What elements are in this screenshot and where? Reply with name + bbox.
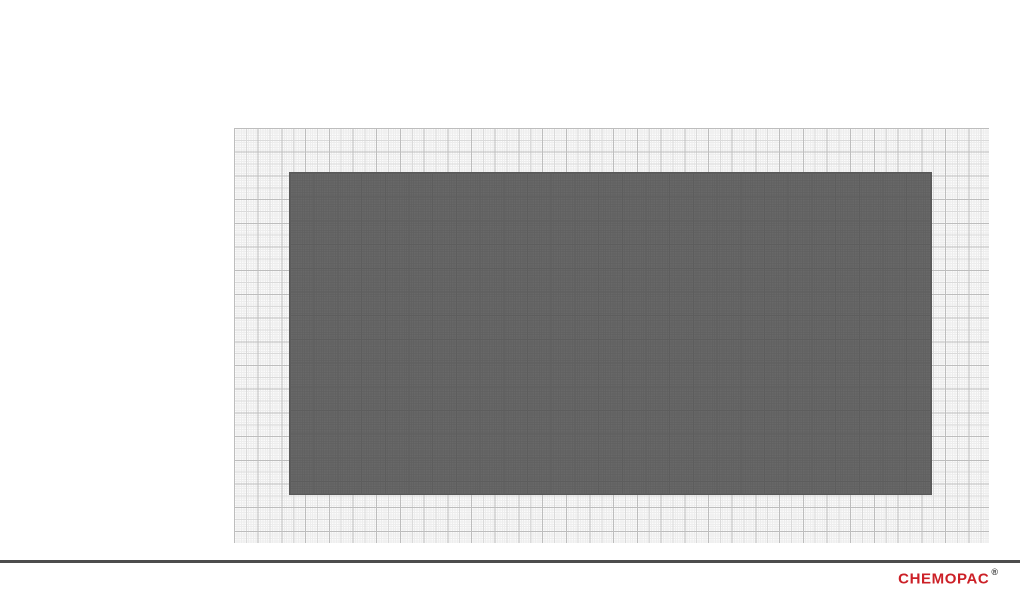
registered-trademark-symbol: ® [991, 567, 998, 577]
page: CHEMOPAC® [0, 0, 1024, 600]
brand-name: CHEMOPAC [898, 570, 989, 587]
graph-paper-grid [234, 128, 989, 543]
footer-divider [0, 560, 1020, 563]
product-sheet-rectangle [289, 172, 932, 495]
brand-logo: CHEMOPAC® [898, 570, 998, 587]
